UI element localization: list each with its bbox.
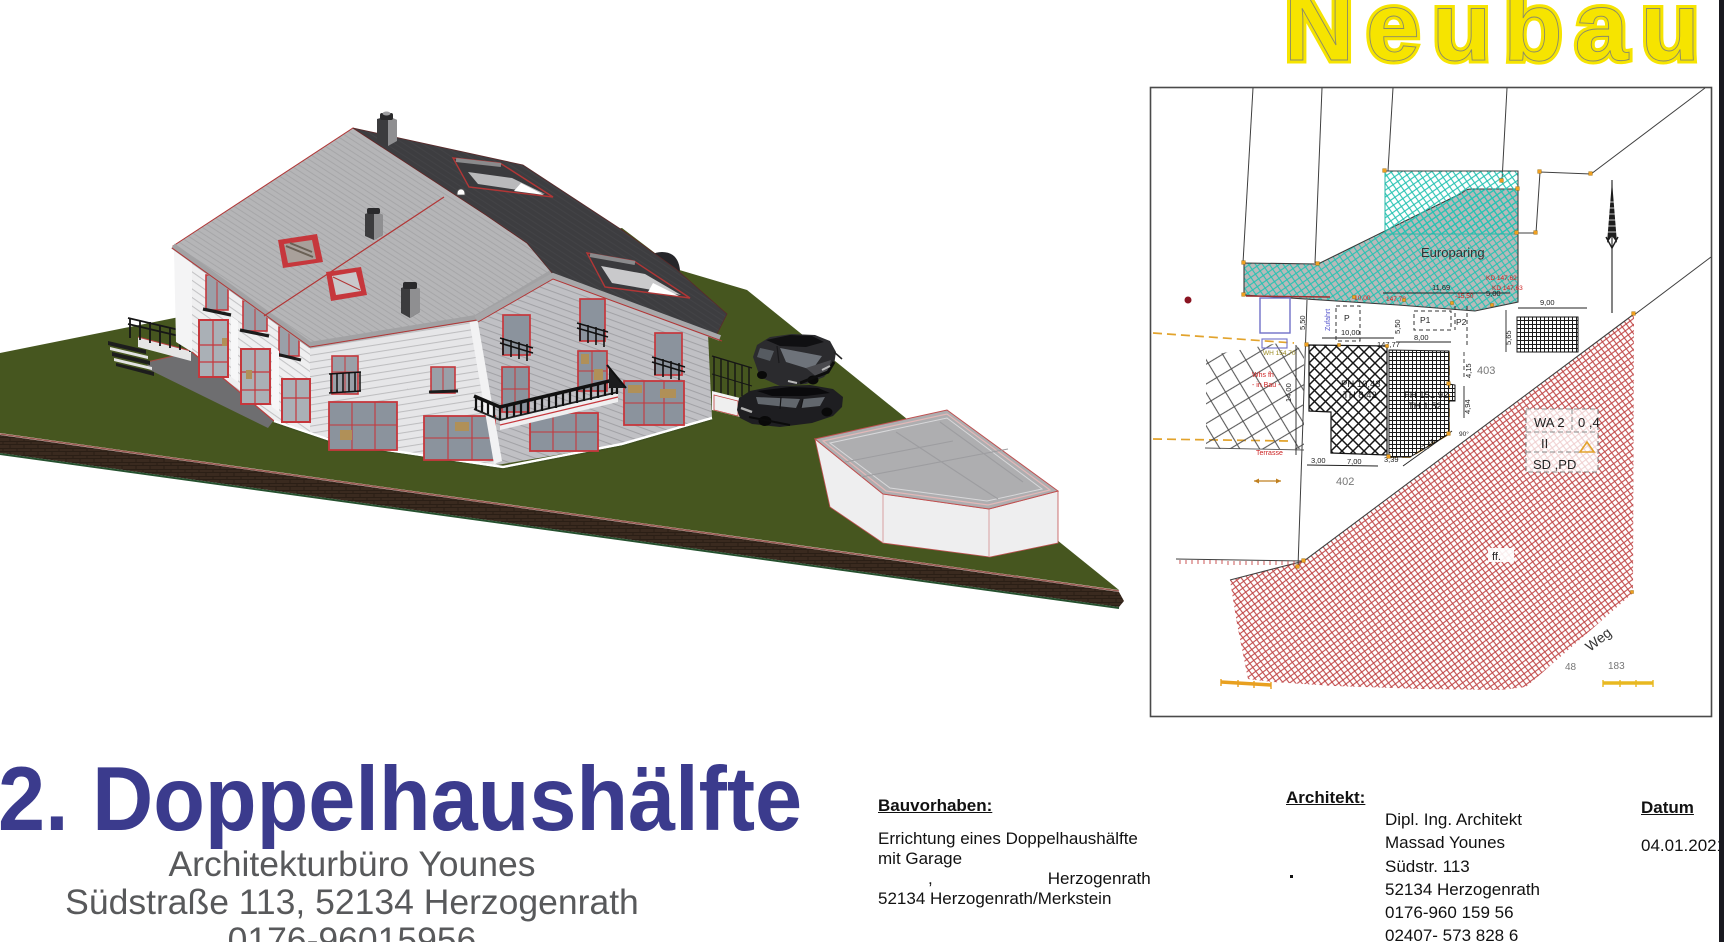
svg-text:WH 154,70: WH 154,70	[1263, 350, 1296, 357]
svg-text:5,65: 5,65	[1504, 330, 1513, 345]
svg-text:402: 402	[1336, 476, 1354, 488]
svg-text:II: II	[1541, 436, 1548, 451]
svg-text:-15,50: -15,50	[1455, 293, 1474, 300]
svg-text:90°: 90°	[1459, 430, 1469, 438]
svg-text:5,00: 5,00	[1486, 289, 1501, 298]
svg-text:- in Bau -: - in Bau -	[1252, 382, 1281, 389]
svg-text:8,00: 8,00	[1414, 333, 1429, 342]
svg-text:10,00: 10,00	[1341, 328, 1360, 337]
svg-text:ff.: ff.	[1492, 551, 1501, 563]
svg-text:48: 48	[1565, 662, 1577, 673]
svg-text:WA 2: WA 2	[1534, 415, 1565, 430]
svg-text:TH 8,42: TH 8,42	[1343, 390, 1377, 401]
svg-text:9,00: 9,00	[1540, 298, 1555, 307]
svg-text:Whs fh: Whs fh	[1252, 372, 1274, 379]
svg-text:PH 10,43: PH 10,43	[1341, 379, 1381, 390]
svg-text:5,50: 5,50	[1393, 319, 1402, 334]
svg-text:KD 147,62: KD 147,62	[1486, 275, 1517, 282]
svg-text:Neubau: Neubau	[1284, 0, 1712, 70]
svg-text:4,15: 4,15	[1464, 363, 1473, 378]
svg-text:403: 403	[1477, 365, 1495, 377]
svg-text:Europaring: Europaring	[1421, 245, 1485, 260]
svg-text:5,50: 5,50	[1298, 315, 1307, 330]
svg-text:Terrasse: Terrasse	[1256, 450, 1283, 457]
svg-text:183: 183	[1608, 661, 1625, 672]
svg-text:P: P	[1344, 313, 1350, 323]
svg-text:FH 151,92: FH 151,92	[1404, 390, 1448, 401]
svg-text:11,69: 11,69	[1432, 283, 1450, 292]
svg-text:TH 1,52: TH 1,52	[1408, 401, 1442, 412]
svg-text:14,00: 14,00	[1284, 383, 1293, 402]
svg-text:7,00: 7,00	[1347, 457, 1362, 466]
svg-text:3,00: 3,00	[1311, 456, 1326, 465]
svg-text:Zufahrt: Zufahrt	[1325, 309, 1332, 331]
svg-text:SD ,PD: SD ,PD	[1533, 457, 1576, 472]
svg-text:P1: P1	[1420, 315, 1431, 325]
svg-text:0 ,4: 0 ,4	[1578, 415, 1600, 430]
svg-text:P2: P2	[1456, 317, 1467, 327]
